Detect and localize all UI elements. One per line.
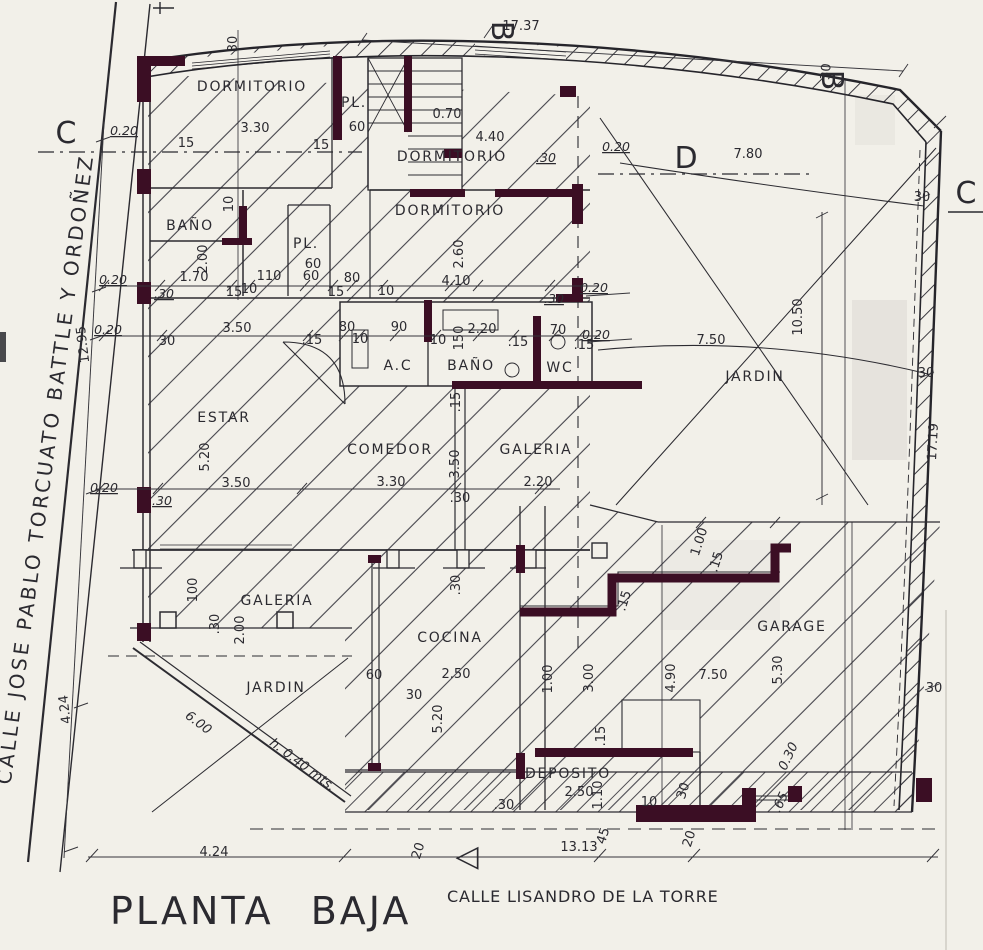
dimension-label: 0.20 bbox=[580, 280, 608, 295]
plan-title: PLANTA BAJA bbox=[110, 889, 411, 933]
dimension-label: 3.50 bbox=[448, 450, 463, 479]
dimension-label: 4.40 bbox=[476, 130, 505, 145]
dimension-label: 30 bbox=[926, 681, 943, 696]
section-mark-c: C bbox=[956, 176, 977, 211]
dimension-label: 2.20 bbox=[468, 322, 497, 337]
dimension-label: 3.50 bbox=[222, 476, 251, 491]
room-label-pl: PL. bbox=[341, 95, 367, 111]
dimension-label: 150 bbox=[452, 326, 467, 351]
section-mark-b: B bbox=[814, 70, 849, 91]
dimension-label: .30 bbox=[449, 575, 464, 596]
room-label-jardin: JARDIN bbox=[724, 369, 784, 385]
section-mark-a: ◁ bbox=[455, 839, 478, 874]
dimension-label: .30 bbox=[544, 291, 564, 306]
dimension-label: 3.30 bbox=[241, 121, 270, 136]
dimension-label: 70 bbox=[550, 323, 567, 338]
street-name-bottom: CALLE LISANDRO DE LA TORRE bbox=[447, 887, 719, 906]
dimension-label: .30 bbox=[154, 286, 174, 301]
dimension-label: 0.20 bbox=[582, 327, 610, 342]
dimension-label: 1.10 bbox=[591, 781, 606, 810]
dimension-label: 60 bbox=[349, 120, 366, 135]
dimension-label: .15 bbox=[508, 335, 529, 350]
dimension-label: 7.50 bbox=[699, 668, 728, 683]
dimension-label: 0.20 bbox=[99, 272, 127, 287]
dimension-label: 2.50 bbox=[565, 785, 594, 800]
dimension-label: 1.00 bbox=[541, 665, 556, 694]
dimension-label: 0.20 bbox=[90, 480, 118, 495]
dimension-label: 10 bbox=[241, 282, 258, 297]
section-mark-c: C bbox=[56, 116, 77, 151]
dimension-label: 100 bbox=[186, 578, 201, 603]
dimension-label: 15 bbox=[313, 138, 330, 153]
dimension-label: 30 bbox=[226, 36, 241, 53]
dimension-label: .30 bbox=[152, 493, 172, 508]
room-label-bao: BAÑO bbox=[166, 217, 214, 234]
room-label-pl: PL. bbox=[293, 236, 319, 252]
dimension-label: 3.30 bbox=[377, 475, 406, 490]
scan-shading bbox=[852, 300, 907, 460]
room-label-jardin: JARDIN bbox=[245, 680, 305, 696]
dimension-label: 5.20 bbox=[198, 443, 213, 472]
dimension-label: 30 bbox=[406, 688, 423, 703]
dimension-label: 15 bbox=[328, 285, 345, 300]
dimension-label: .30 bbox=[450, 491, 471, 506]
dimension-label: 0.20 bbox=[94, 322, 122, 337]
dimension-label: 0.20 bbox=[602, 139, 630, 154]
dimension-label: 2.20 bbox=[524, 475, 553, 490]
dimension-label: 80 bbox=[344, 271, 361, 286]
room-label-estar: ESTAR bbox=[197, 410, 251, 426]
dimension-label: .30 bbox=[208, 614, 223, 635]
dimension-label: 10 bbox=[352, 332, 369, 347]
dimension-label: 13.13 bbox=[560, 840, 597, 855]
dimension-label: .30 bbox=[494, 798, 515, 813]
dimension-label: 0.70 bbox=[433, 107, 462, 122]
room-label-dormitorio: DORMITORIO bbox=[197, 79, 307, 95]
room-label-dormitorio: DORMITORIO bbox=[395, 203, 505, 219]
dimension-label: .15 bbox=[449, 392, 464, 413]
dimension-label: 30 bbox=[159, 334, 176, 349]
room-label-garage: GARAGE bbox=[757, 619, 826, 635]
dimension-label: 3.50 bbox=[223, 321, 252, 336]
dimension-label: 17.19 bbox=[925, 423, 942, 461]
dimension-label: 7.80 bbox=[734, 147, 763, 162]
dimension-label: 15 bbox=[178, 136, 195, 151]
dimension-label: 2.50 bbox=[442, 667, 471, 682]
dimension-label: 10 bbox=[222, 196, 237, 213]
dimension-label: 30 bbox=[914, 190, 931, 205]
dimension-label: 60 bbox=[366, 668, 383, 683]
floor-plan-drawing: DORMITORIODORMITORIODORMITORIOBAÑOPL.PL.… bbox=[0, 0, 983, 950]
dimension-label: 4.24 bbox=[200, 845, 229, 860]
dimension-label: 4.10 bbox=[442, 274, 471, 289]
scan-shadow bbox=[0, 332, 6, 362]
room-label-deposito: DEPOSITO bbox=[525, 766, 611, 782]
room-label-galeria: GALERIA bbox=[240, 593, 313, 609]
scanned-floor-plan-document: DORMITORIODORMITORIODORMITORIOBAÑOPL.PL.… bbox=[0, 0, 983, 950]
dimension-label: .30 bbox=[536, 150, 556, 165]
dimension-label: .15 bbox=[594, 726, 609, 747]
room-label-cocina: COCINA bbox=[417, 630, 483, 646]
dimension-label: 30 bbox=[918, 366, 935, 381]
room-label-wc: WC bbox=[546, 360, 573, 376]
dimension-label: 90 bbox=[391, 320, 408, 335]
dimension-label: 5.30 bbox=[771, 656, 786, 685]
dimension-label: 5.20 bbox=[431, 705, 446, 734]
room-label-bao: BAÑO bbox=[447, 357, 495, 374]
room-label-comedor: COMEDOR bbox=[347, 442, 433, 458]
dimension-label: .15 bbox=[302, 333, 323, 348]
room-label-dormitorio: DORMITORIO bbox=[397, 149, 507, 165]
room-label-galeria: GALERIA bbox=[499, 442, 572, 458]
room-label-ac: A.C bbox=[384, 358, 413, 374]
dimension-label: 3.00 bbox=[582, 664, 597, 693]
dimension-label: 0.20 bbox=[110, 123, 138, 138]
dimension-label: 2.60 bbox=[452, 240, 467, 269]
dimension-label: 7.50 bbox=[697, 333, 726, 348]
dimension-label: 110 bbox=[257, 269, 282, 284]
dimension-label: 60 bbox=[303, 269, 320, 284]
section-mark-d: D bbox=[674, 141, 697, 176]
dimension-label: 10 bbox=[378, 284, 395, 299]
dimension-label: 2.00 bbox=[233, 616, 248, 645]
dimension-label: 4.90 bbox=[664, 664, 679, 693]
dimension-label: 1.70 bbox=[180, 270, 209, 285]
dimension-label: 10 bbox=[641, 795, 658, 810]
dimension-label: 10 bbox=[430, 333, 447, 348]
dimension-label: 10.50 bbox=[791, 298, 806, 335]
section-mark-b: B bbox=[484, 21, 519, 42]
